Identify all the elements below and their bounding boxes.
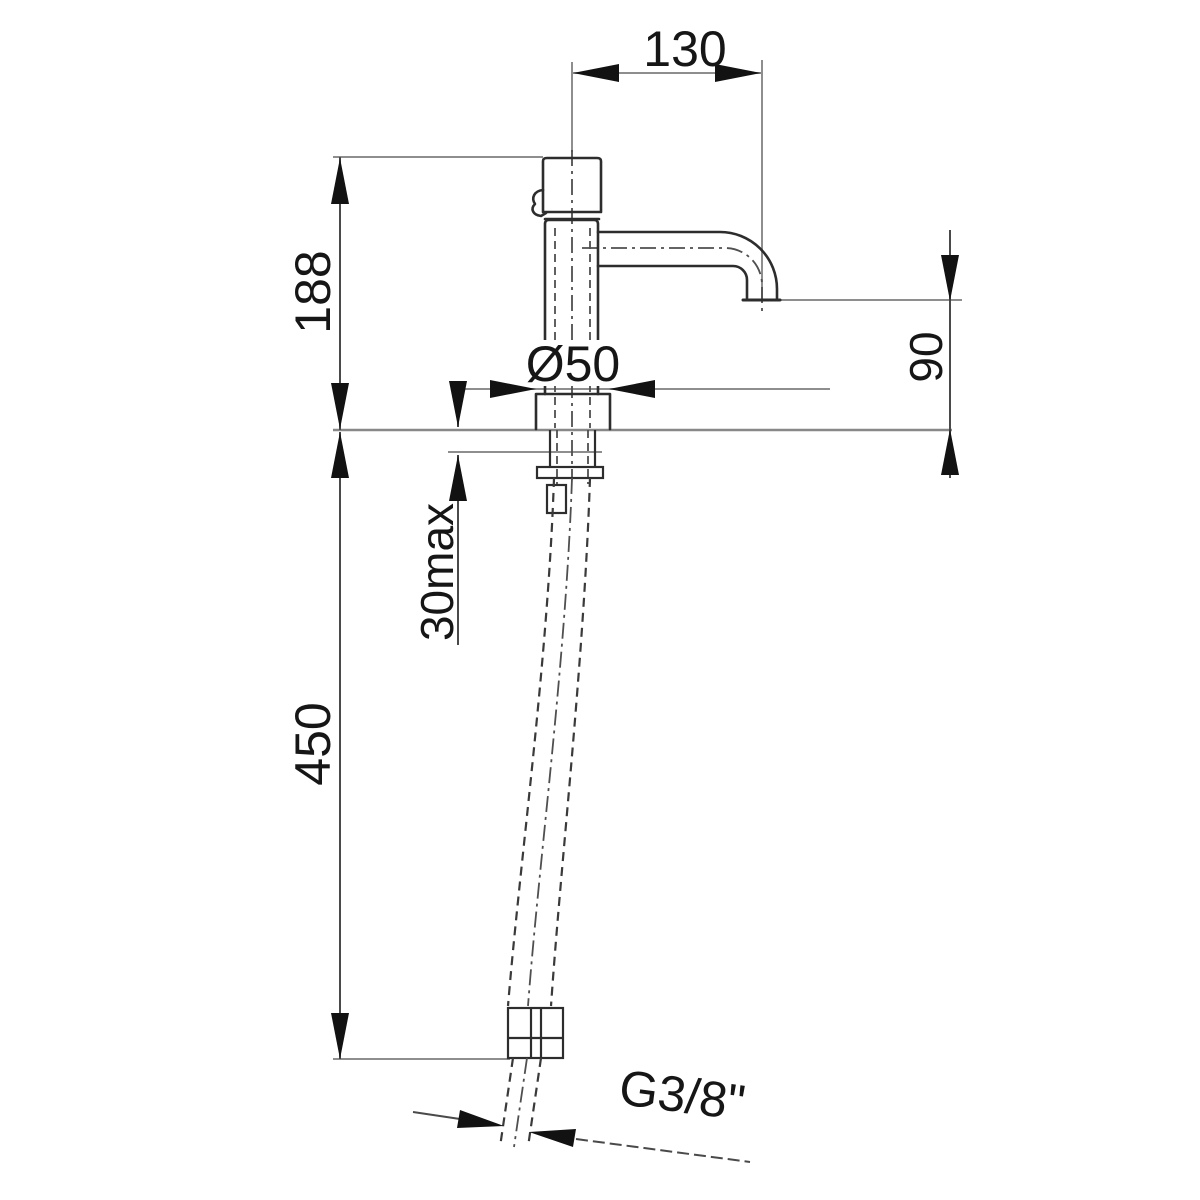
dim-label-base-diameter: Ø50: [526, 336, 621, 392]
arrow-90-top: [941, 255, 959, 301]
arrow-thread-left: [457, 1110, 504, 1128]
hose-connector-facets: [508, 1008, 563, 1058]
thread-leader-left: [413, 1112, 460, 1119]
dim-label-hose-length: 450: [285, 702, 341, 785]
dim-label-thread: G3/8": [616, 1059, 748, 1131]
arrow-30max-bottom: [449, 455, 467, 501]
mounting-nut: [547, 485, 566, 513]
arrow-30max-top: [449, 381, 467, 427]
arrow-188-top: [331, 158, 349, 204]
arrow-188-bottom: [331, 383, 349, 429]
hose-right-edge: [551, 478, 590, 1006]
spout-centerline: [582, 248, 762, 315]
thread-end-centerline: [514, 1058, 527, 1147]
arrow-90-bottom: [941, 429, 959, 475]
faucet-base: [536, 394, 610, 429]
dim-label-spout-height: 90: [900, 331, 952, 382]
arrow-thread-right: [529, 1129, 576, 1147]
centerlines: [555, 150, 762, 484]
mounting-washer: [537, 467, 603, 478]
dim-label-body-height: 188: [285, 250, 341, 333]
arrow-450-top: [331, 432, 349, 478]
thread-end-left: [500, 1058, 513, 1147]
dimension-labels: 130 188 Ø50 90 30max 450 G3/8": [285, 21, 952, 1131]
dim-label-spout-reach: 130: [643, 21, 726, 77]
supply-hose: [500, 478, 590, 1147]
hose-connector: [508, 1008, 563, 1058]
thread-leader-right: [576, 1139, 750, 1162]
technical-drawing-page: 130 188 Ø50 90 30max 450 G3/8": [0, 0, 1200, 1200]
spout-bottom-edge: [598, 266, 747, 298]
faucet-dimension-drawing: 130 188 Ø50 90 30max 450 G3/8": [0, 0, 1200, 1200]
arrow-450-bottom: [331, 1013, 349, 1059]
mounting-hardware: [537, 430, 603, 513]
hose-left-edge: [508, 478, 554, 1006]
arrow-130-left: [573, 64, 619, 82]
dim-label-deck-thickness: 30max: [411, 503, 463, 641]
dimension-lines: [340, 157, 950, 1162]
